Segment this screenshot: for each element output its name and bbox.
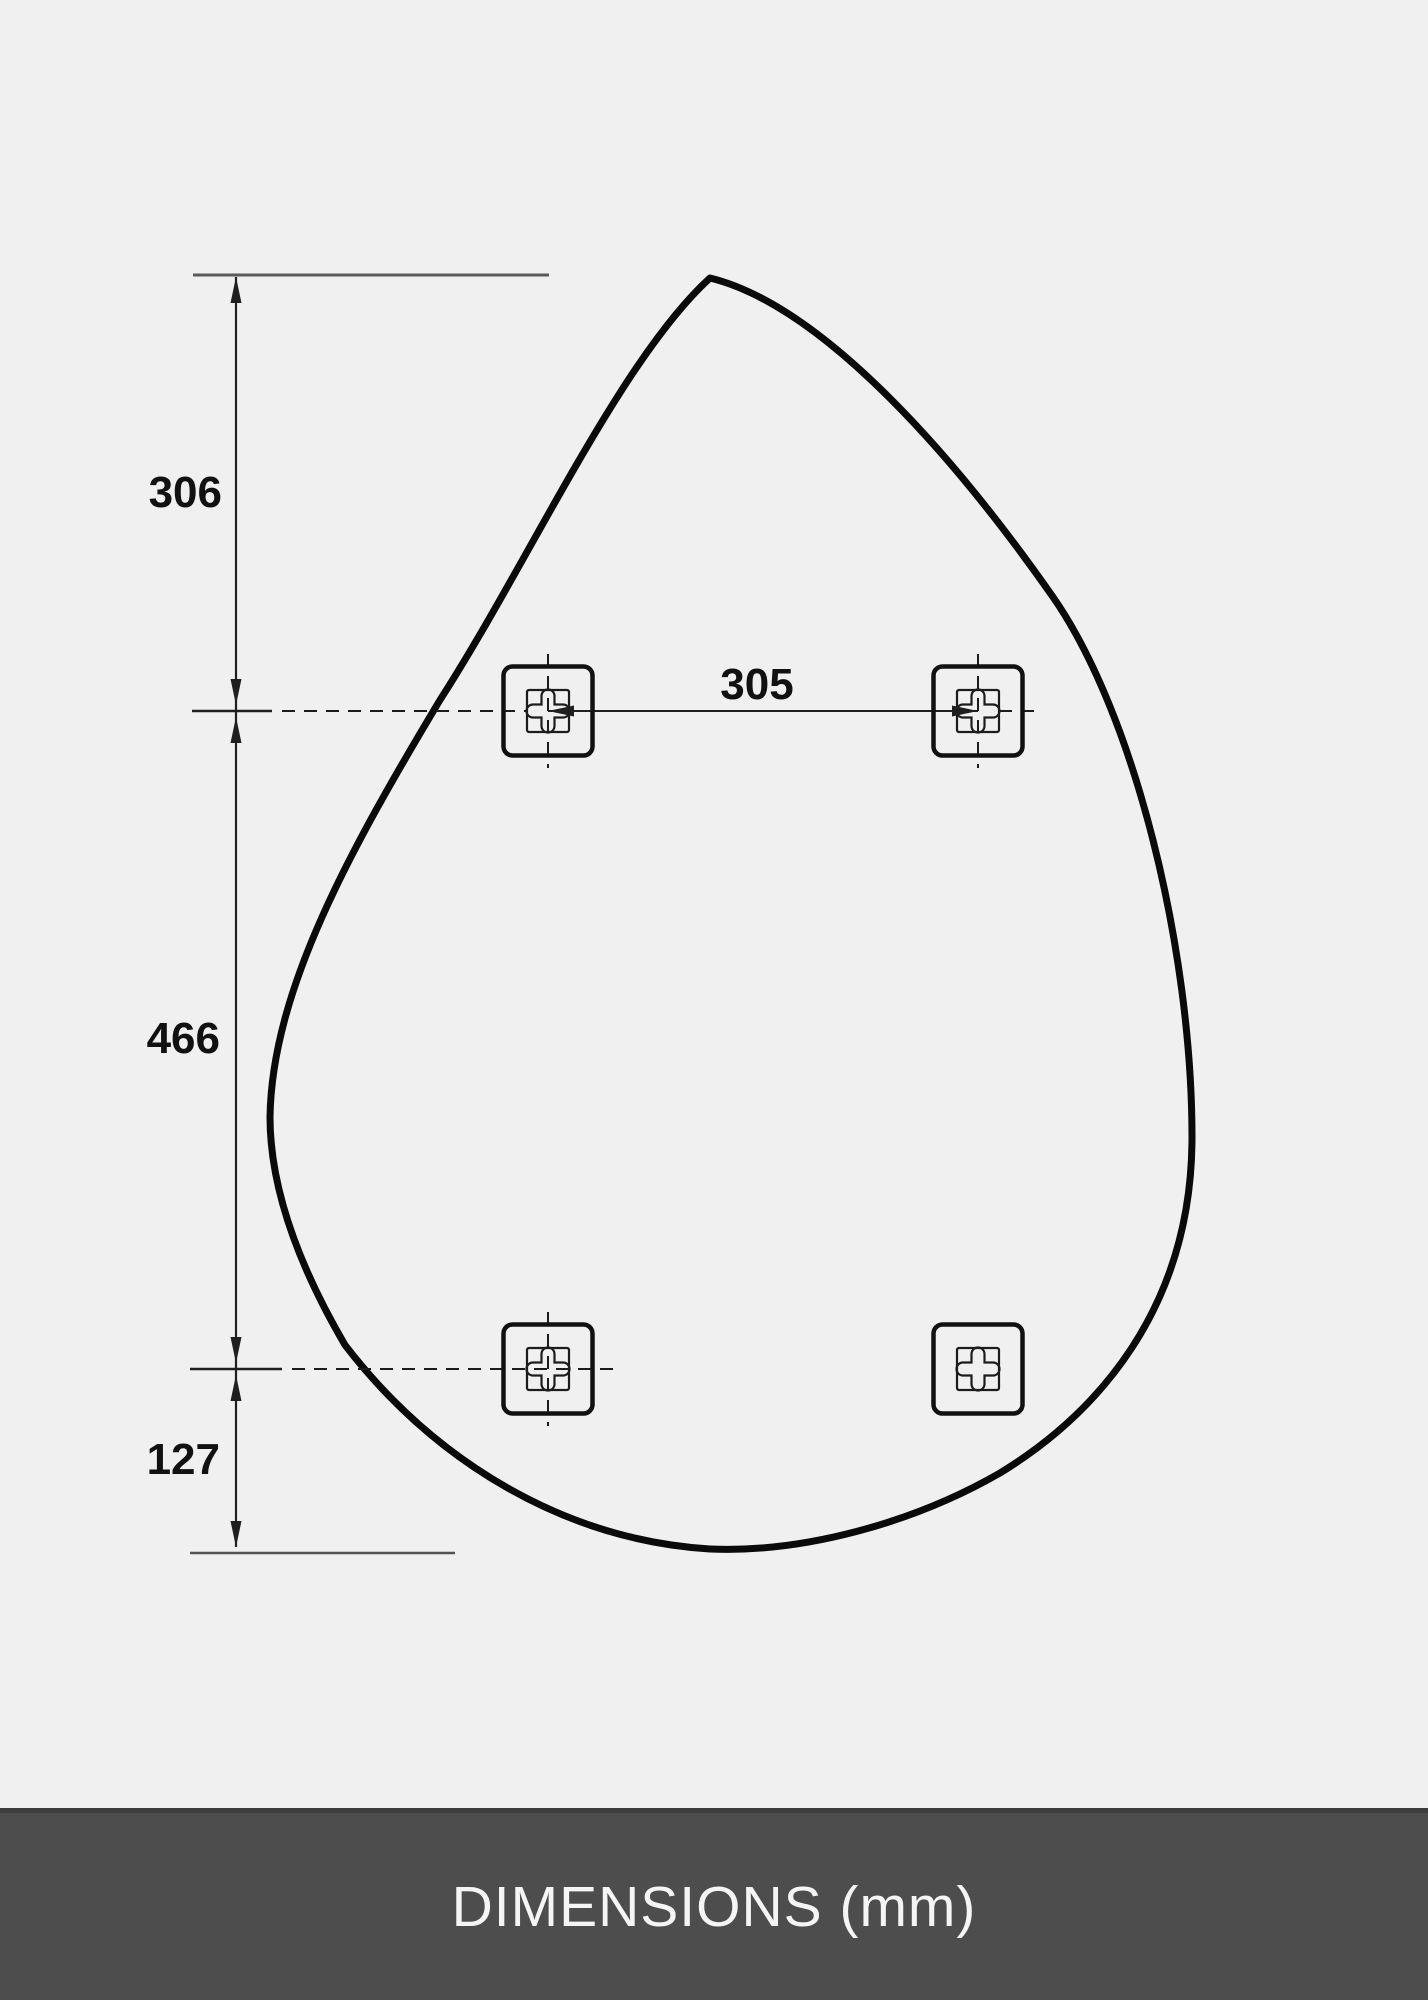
dimension-label-top-offset: 306 xyxy=(149,468,222,517)
dimension-label-middle-span: 466 xyxy=(147,1014,220,1063)
arrow-down-icon xyxy=(231,679,242,705)
arrow-up-icon xyxy=(231,277,242,303)
mounting-bracket-bottom-right xyxy=(934,1325,1023,1414)
footer-title: DIMENSIONS (mm) xyxy=(452,1874,977,1940)
arrow-down-icon xyxy=(231,1337,242,1363)
footer-bar: DIMENSIONS (mm) xyxy=(0,1808,1428,2000)
arrow-up-icon xyxy=(231,717,242,743)
dimension-label-bottom-offset: 127 xyxy=(147,1435,220,1484)
arrow-down-icon xyxy=(231,1521,242,1547)
mirror-outline xyxy=(270,278,1192,1549)
dimension-drawing-page: 306 466 127 305 DIMENSIONS (mm) xyxy=(0,0,1428,2000)
arrow-up-icon xyxy=(231,1375,242,1401)
dimension-label-bracket-spacing: 305 xyxy=(720,660,793,709)
vertical-dimension-line xyxy=(231,277,242,1547)
dimension-diagram: 306 466 127 305 xyxy=(0,0,1428,2000)
